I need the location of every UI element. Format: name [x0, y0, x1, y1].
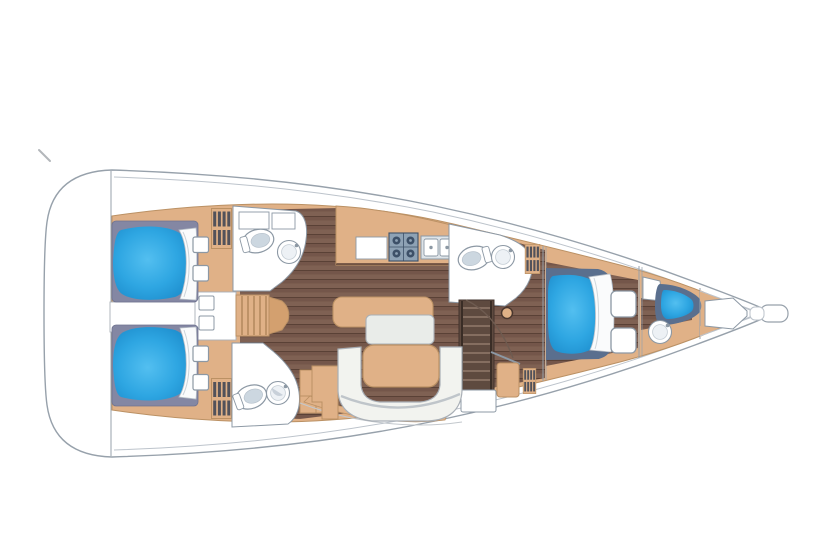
nav-seat [497, 363, 519, 397]
deck-hatch-seat [611, 291, 636, 317]
bow-fitting [750, 307, 764, 320]
locker-door [199, 296, 214, 310]
stairs [459, 300, 494, 392]
companionway-steps [236, 295, 269, 336]
stray-tick-mark [39, 150, 50, 161]
salon-table [363, 345, 439, 387]
table-leaf [366, 315, 434, 344]
stove-4-burner [389, 233, 418, 261]
round-sink [649, 321, 672, 344]
louvered-locker [523, 368, 536, 393]
louvered-locker [525, 244, 540, 273]
vanity-cabinet [272, 213, 295, 229]
boat-floorplan [0, 0, 840, 560]
round-sink [492, 246, 515, 269]
deck-hatch-seat [611, 328, 636, 353]
round-sink [278, 241, 301, 264]
fridge-counter [356, 237, 387, 259]
locker-door [199, 316, 214, 330]
chart-table [461, 390, 496, 412]
yacht-floorplan-canvas [0, 0, 840, 560]
bow-section [700, 288, 788, 339]
mast-post [502, 308, 513, 319]
vanity-cabinet [239, 212, 269, 229]
